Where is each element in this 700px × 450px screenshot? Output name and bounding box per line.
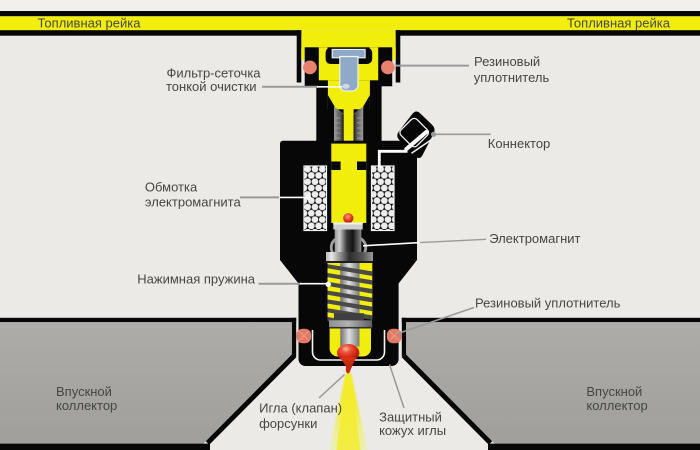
- svg-text:Игла (клапан): Игла (клапан): [259, 401, 342, 416]
- svg-text:Коннектор: Коннектор: [488, 136, 551, 151]
- svg-text:кожух иглы: кожух иглы: [379, 423, 446, 438]
- svg-text:Нажимная пружина: Нажимная пружина: [137, 272, 255, 287]
- svg-text:уплотнитель: уплотнитель: [474, 70, 550, 85]
- svg-text:Электромагнит: Электромагнит: [489, 231, 580, 246]
- svg-text:коллектор: коллектор: [56, 398, 117, 413]
- svg-text:форсунки: форсунки: [259, 416, 317, 431]
- svg-text:Резиновый уплотнитель: Резиновый уплотнитель: [475, 296, 621, 311]
- svg-text:Резиновый: Резиновый: [474, 54, 540, 69]
- svg-text:Топливная рейка: Топливная рейка: [38, 15, 142, 30]
- svg-text:Топливная рейка: Топливная рейка: [567, 15, 671, 30]
- svg-text:тонкой очистки: тонкой очистки: [166, 79, 257, 94]
- svg-text:коллектор: коллектор: [586, 398, 647, 413]
- svg-text:Впускной: Впускной: [586, 384, 642, 399]
- svg-text:Впускной: Впускной: [56, 384, 112, 399]
- svg-text:электромагнита: электромагнита: [145, 194, 242, 209]
- svg-text:Обмотка: Обмотка: [145, 180, 198, 195]
